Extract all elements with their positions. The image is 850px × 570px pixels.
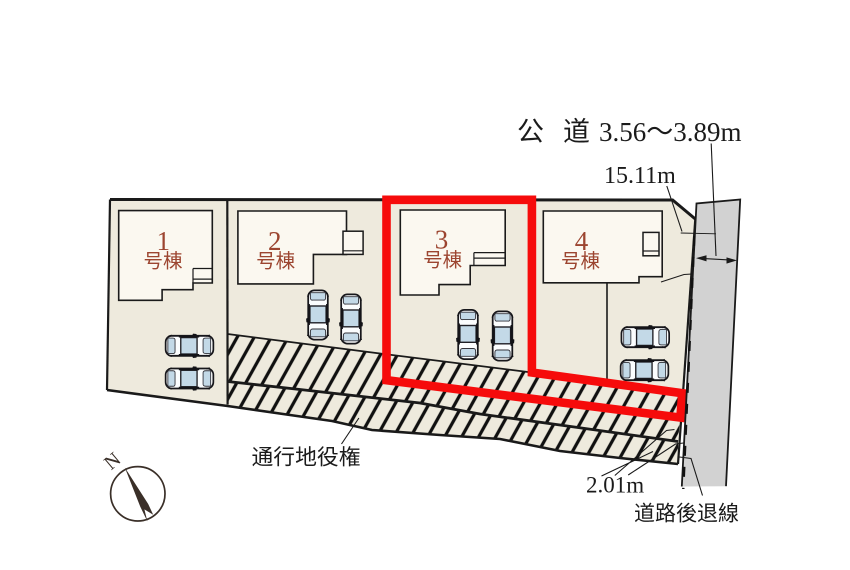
svg-text:通行地役権: 通行地役権: [252, 446, 361, 470]
svg-text:号棟: 号棟: [423, 250, 463, 272]
svg-text:道: 道: [563, 117, 590, 147]
svg-text:号棟: 号棟: [143, 251, 183, 273]
svg-text:15.11m: 15.11m: [604, 163, 676, 189]
svg-text:号棟: 号棟: [256, 251, 296, 273]
svg-text:公: 公: [517, 117, 544, 147]
svg-text:道路後退線: 道路後退線: [634, 502, 739, 526]
svg-text:2.01m: 2.01m: [586, 473, 644, 498]
svg-text:3.56～3.89m: 3.56～3.89m: [599, 117, 742, 147]
svg-text:号棟: 号棟: [561, 251, 601, 273]
